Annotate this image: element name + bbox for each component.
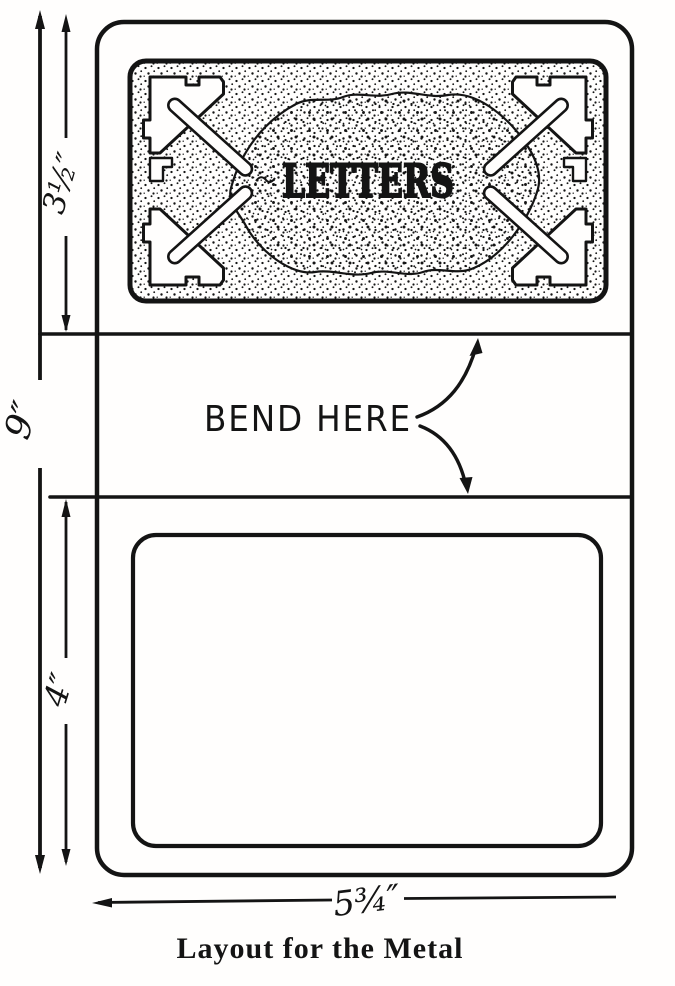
arrowhead-up [35, 10, 45, 29]
figure-caption: Layout for the Metal [0, 932, 640, 966]
bend-here-label: BEND HERE [204, 399, 412, 440]
bottom-panel-outline [133, 535, 601, 846]
dim-label-overall-width: 5¾″ [331, 877, 403, 922]
dim-label-top-section: 3½″ [36, 148, 88, 217]
arrowhead-left [92, 898, 112, 908]
dimension-bottom-section: 4″ [35, 499, 81, 866]
arrowhead-up [62, 14, 71, 32]
arrowhead-down [35, 855, 45, 874]
figure-page: LETTERS BEND HERE 9″ 3½″ [0, 0, 675, 986]
arrowhead-down [62, 315, 71, 332]
dim-label-total-height: 9″ [0, 396, 47, 444]
dim-label-bottom-section: 4″ [35, 669, 81, 712]
panel-embossed-text: LETTERS [282, 154, 454, 208]
arrowhead-down [62, 849, 71, 866]
dimension-total-height: 9″ [0, 10, 47, 874]
arrowhead-up [62, 499, 71, 517]
dimension-top-section: 3½″ [36, 14, 88, 332]
metal-layout-drawing: LETTERS BEND HERE 9″ 3½″ [0, 0, 675, 922]
decorative-panel: LETTERS [130, 61, 606, 301]
dimension-overall-width: 5¾″ [92, 877, 616, 922]
